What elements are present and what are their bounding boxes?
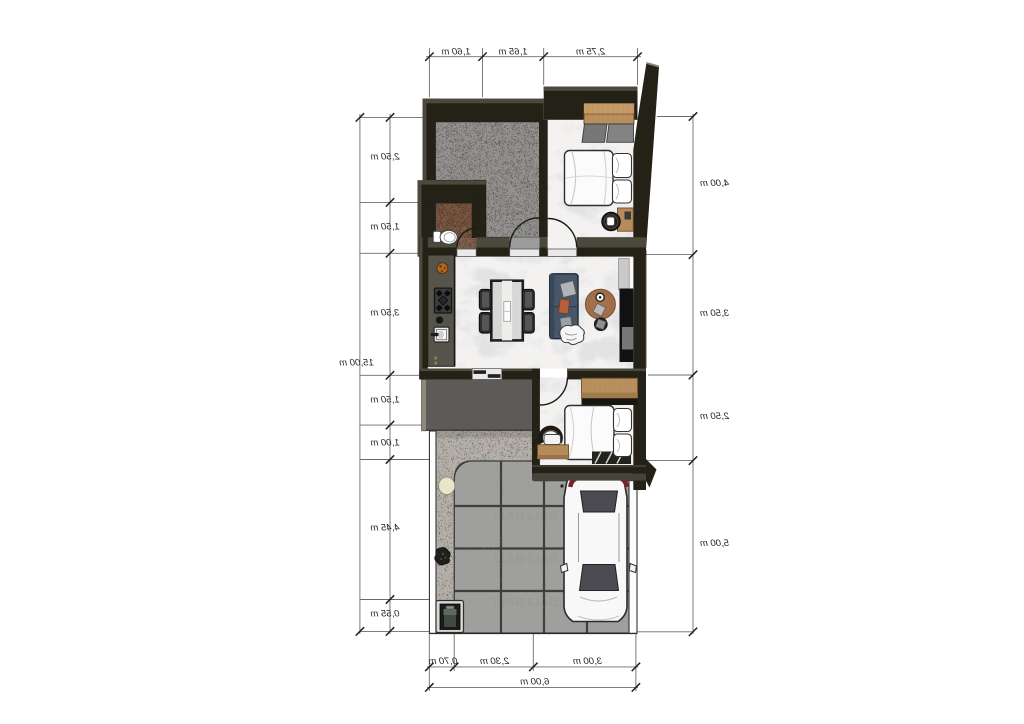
- svg-text:2,50 m: 2,50 m: [700, 411, 730, 422]
- svg-text:3,50 m: 3,50 m: [370, 308, 399, 319]
- svg-text:2,50 m: 2,50 m: [370, 152, 400, 163]
- svg-text:2,30 m: 2,30 m: [480, 656, 510, 667]
- svg-text:0,70 m: 0,70 m: [428, 656, 457, 667]
- svg-text:1,50 m: 1,50 m: [370, 395, 399, 406]
- svg-text:4,45 m: 4,45 m: [370, 523, 399, 534]
- svg-text:3,00 m: 3,00 m: [573, 656, 602, 667]
- svg-text:1,00 m: 1,00 m: [370, 438, 399, 449]
- svg-text:1,60 m: 1,60 m: [441, 47, 470, 58]
- svg-text:2,75 m: 2,75 m: [576, 47, 606, 58]
- svg-text:3,50 m: 3,50 m: [700, 308, 729, 319]
- svg-text:6,00 m: 6,00 m: [520, 677, 549, 688]
- svg-text:4,00 m: 4,00 m: [700, 178, 729, 189]
- svg-text:0,55 m: 0,55 m: [370, 609, 399, 620]
- svg-text:15,00 m: 15,00 m: [339, 358, 374, 369]
- svg-text:5,00 m: 5,00 m: [700, 538, 729, 549]
- svg-text:1,65 m: 1,65 m: [498, 47, 527, 58]
- svg-text:1,50 m: 1,50 m: [370, 222, 399, 233]
